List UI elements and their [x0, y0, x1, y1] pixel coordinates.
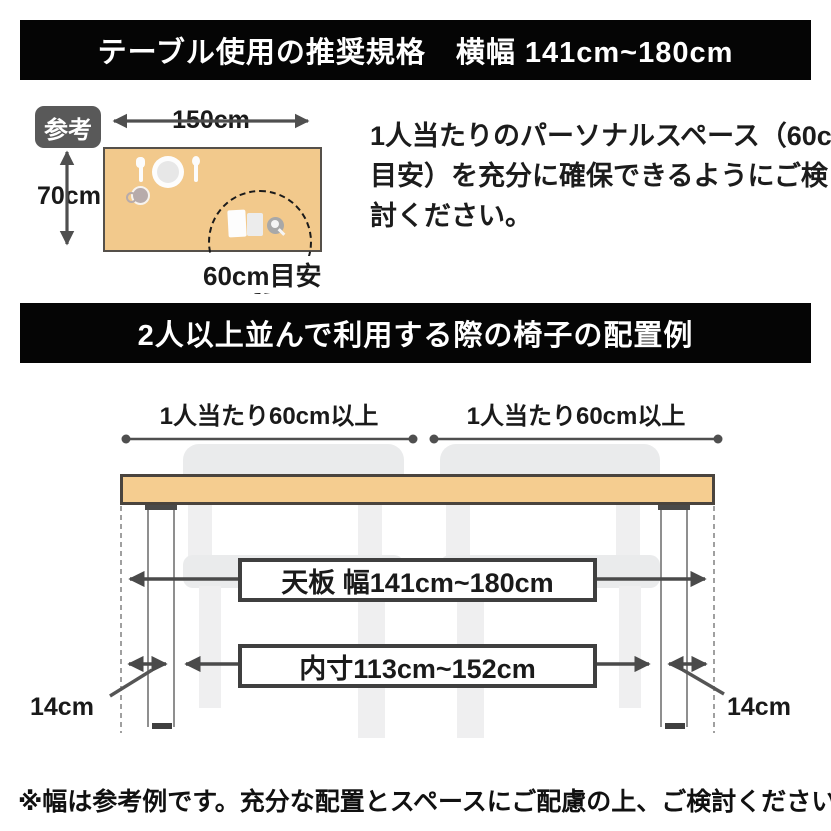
chair-right-post: [616, 505, 640, 561]
per-person-label-right: 1人当たり60cm以上: [446, 396, 706, 431]
tabletop-width-box: 天板 幅141cm~180cm: [238, 558, 597, 602]
plate-inner: [157, 161, 179, 183]
personal-space-label: 60cm目安: [203, 256, 315, 293]
table-depth-label: 70cm: [37, 182, 99, 211]
fork-head-icon: [136, 157, 145, 168]
chair-right-post: [446, 505, 470, 561]
table-width-label: 150cm: [164, 106, 258, 135]
table-leg-right-foot: [665, 723, 685, 729]
leg-offset-label-right: 14cm: [727, 693, 791, 722]
tabletop-side-view: [120, 474, 715, 505]
chair-left-leg: [199, 586, 221, 708]
table-leg-left-cap: [145, 505, 177, 510]
table-leg-left: [147, 505, 175, 727]
chair-right-backrest: [440, 444, 660, 478]
dimension-dot: [122, 435, 131, 444]
description-line-1: 1人当たりのパーソナルスペース（60cm: [370, 116, 831, 156]
chair-right-leg: [619, 586, 641, 708]
spoon-head-icon: [192, 156, 200, 166]
description-line-2: 目安）を充分に確保できるようにご検: [370, 156, 831, 196]
top-banner-title: テーブル使用の推奨規格 横幅 141cm~180cm: [98, 29, 734, 71]
leg-offset-label-left: 14cm: [30, 693, 94, 722]
per-person-label-left: 1人当たり60cm以上: [139, 396, 399, 431]
chair-left-backrest: [183, 444, 404, 478]
cup-handle: [126, 192, 137, 203]
inner-width-label: 内寸113cm~152cm: [299, 647, 535, 686]
leader-line-left: [110, 670, 152, 696]
dimension-dot: [409, 435, 418, 444]
description-line-3: 討ください。: [370, 196, 831, 236]
reference-badge-label: 参考: [44, 110, 92, 145]
table-leg-left-foot: [152, 723, 172, 729]
footnote: ※幅は参考例です。充分な配置とスペースにご配慮の上、ご検討ください。: [18, 782, 818, 818]
reference-description: 1人当たりのパーソナルスペース（60cm 目安）を充分に確保できるようにご検 討…: [370, 116, 831, 236]
book-icon: [227, 210, 246, 238]
chair-left-post: [358, 505, 382, 561]
infographic-page: テーブル使用の推奨規格 横幅 141cm~180cm 参考 150cm 70cm…: [0, 0, 831, 831]
reference-badge: 参考: [35, 106, 101, 148]
dimension-dot: [430, 435, 439, 444]
tabletop-width-label: 天板 幅141cm~180cm: [281, 561, 553, 600]
inner-width-box: 内寸113cm~152cm: [238, 644, 597, 688]
leader-line-right: [683, 670, 724, 694]
table-leg-right: [660, 505, 688, 727]
book-page: [247, 213, 263, 236]
middle-banner: 2人以上並んで利用する際の椅子の配置例: [20, 303, 811, 363]
table-leg-right-cap: [658, 505, 690, 510]
magnifier-lens: [271, 220, 279, 228]
dimension-dot: [714, 435, 723, 444]
top-banner: テーブル使用の推奨規格 横幅 141cm~180cm: [20, 20, 811, 80]
chair-left-post: [188, 505, 212, 561]
middle-banner-title: 2人以上並んで利用する際の椅子の配置例: [138, 312, 694, 354]
